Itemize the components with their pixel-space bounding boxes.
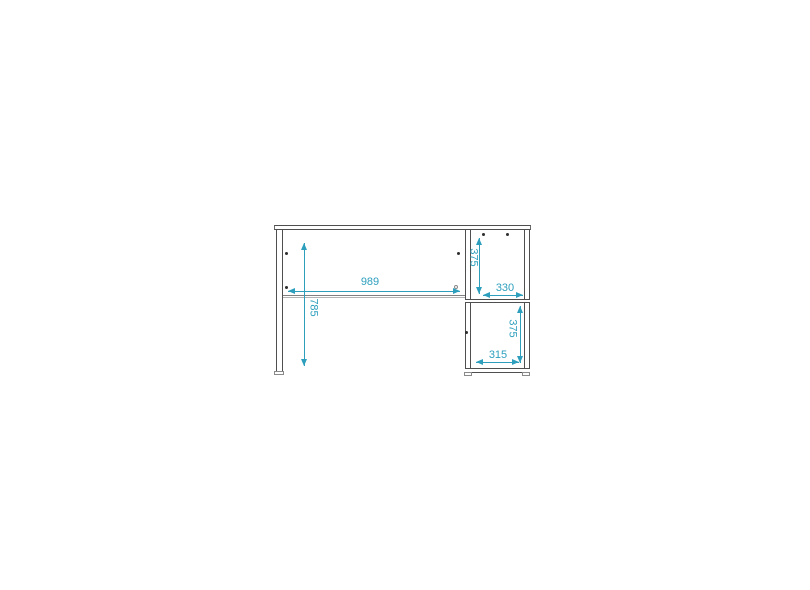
cam-dot: [482, 233, 485, 236]
desk-height-arrow: [304, 243, 305, 366]
left-leg-panel: [276, 230, 283, 371]
cam-dot: [506, 233, 509, 236]
upper-compartment-height-label: 375: [468, 247, 479, 269]
cabinet-bottom-panel: [465, 368, 530, 373]
desk-height-label: 785: [308, 292, 319, 324]
cam-dot: [285, 252, 288, 255]
upper-compartment-width-label: 330: [490, 283, 520, 294]
desk-opening-width-label: 989: [350, 277, 390, 288]
cabinet-foot-left: [464, 372, 472, 376]
lower-compartment-width-label: 315: [483, 350, 513, 361]
lower-compartment-height-arrow: [520, 306, 521, 363]
upper-compartment-width-arrow: [483, 295, 523, 296]
cabinet-foot-right: [522, 372, 530, 376]
desk-technical-drawing: 989 785 375 330 375 315: [0, 0, 810, 590]
cam-dot: [465, 331, 468, 334]
desk-top-panel: [274, 225, 531, 230]
lower-compartment-height-label: 375: [507, 318, 518, 340]
lower-compartment-width-arrow: [476, 362, 519, 363]
cam-dot: [457, 252, 460, 255]
left-leg-foot: [274, 371, 284, 375]
cabinet-shelf-panel: [465, 299, 530, 303]
